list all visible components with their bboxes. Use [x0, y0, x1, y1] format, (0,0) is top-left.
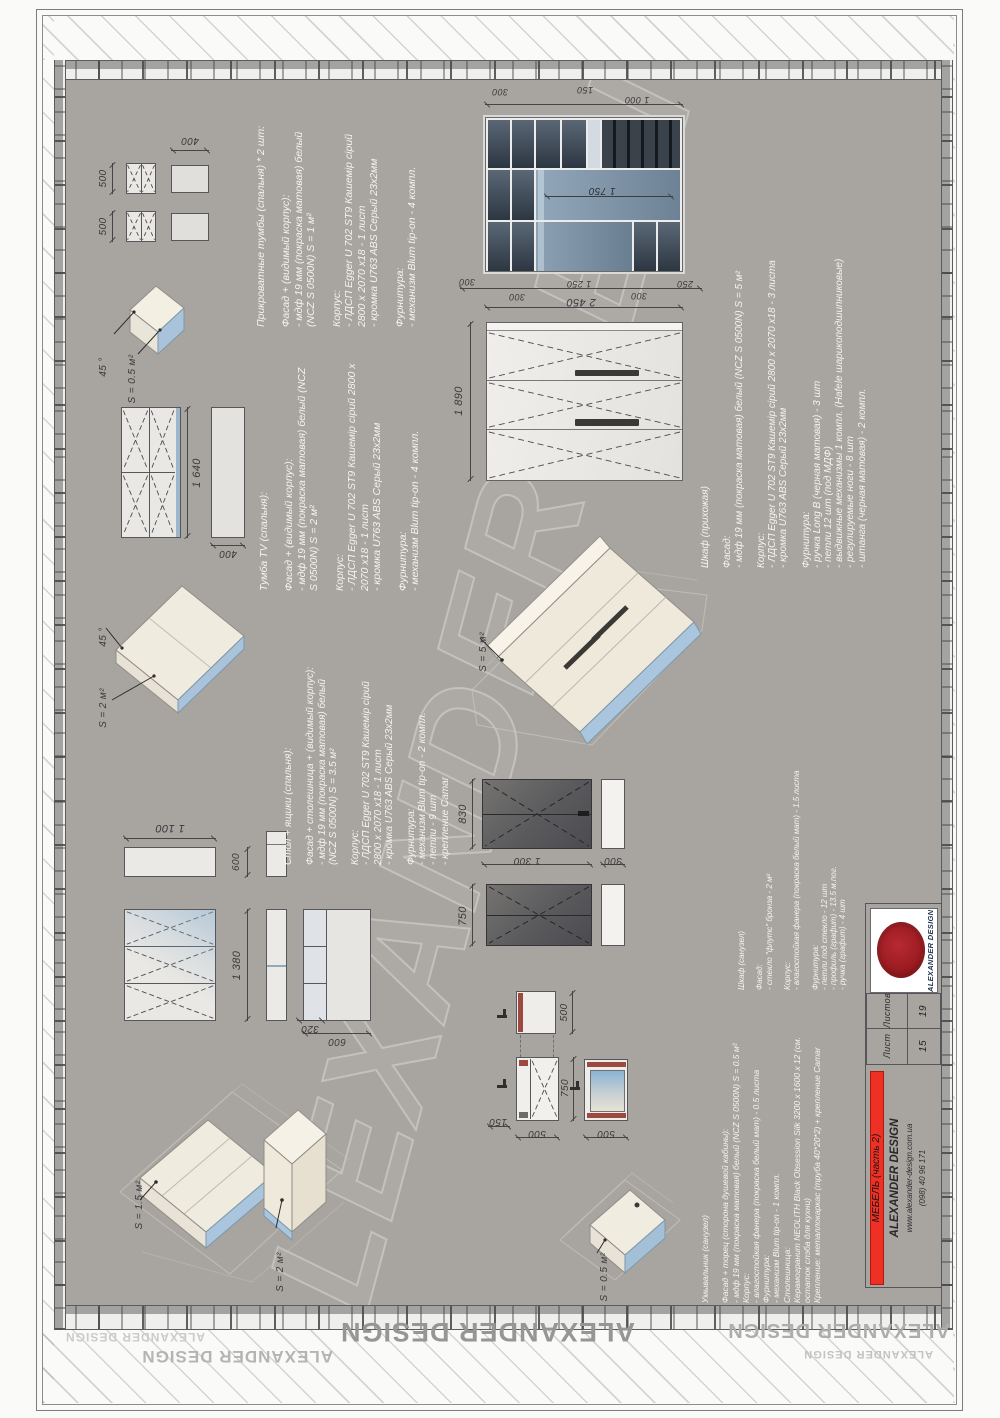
spec-line: [339, 593, 350, 865]
door-handle: [575, 419, 639, 426]
company-website: www.alexander-design.com.ua: [904, 1071, 916, 1285]
spec-title: Умывальник (санузел): [700, 1000, 710, 1303]
door-panel: [127, 164, 142, 193]
spec-line: - кромка U763 ABS Серый 23х2мм: [384, 593, 395, 865]
projection-line: [553, 1035, 554, 1057]
spec-gap: [711, 148, 722, 568]
dim-label: 1 000: [616, 95, 658, 105]
stamp-company-text: ALEXANDER DESIGN: [925, 910, 937, 992]
area-label: S = 2 м²: [97, 682, 110, 734]
company-name: ALEXANDER DESIGN: [887, 1071, 904, 1285]
spec-line: Фурнитура:: [394, 95, 407, 327]
spec-line: - мдф 19 мм (покраска матовая) белый: [293, 95, 306, 327]
door-handle: [575, 370, 639, 376]
spec-gap: [271, 333, 284, 591]
dim-label: 500: [558, 997, 571, 1028]
dim-label: 1 890: [452, 370, 467, 432]
margin-watermark: ALEXANDER DESIGN: [700, 1318, 950, 1341]
spec-line: - петли - 9 шт: [428, 593, 439, 865]
spec-line: Фасад:: [755, 758, 764, 990]
angle-label: 45 °: [97, 618, 110, 656]
dim-label: 300: [599, 855, 627, 866]
title-block: ALEXANDER DESIGN Листов 19 Лист 15 МЕБЕЛ…: [865, 903, 942, 1288]
drawer-side: [304, 984, 327, 1020]
spec-line: [318, 95, 331, 327]
spec-line: - механизм Blum tip-on - 4 компл.: [409, 333, 422, 591]
dim-line: [187, 407, 188, 538]
dim-label: 500: [517, 1128, 557, 1139]
door-section: [487, 430, 682, 480]
angle-label: 45 °: [97, 348, 110, 386]
bath-side-view: [601, 884, 625, 946]
tv-isometric: [102, 572, 257, 720]
area-label: S = 1.5 м²: [133, 1174, 146, 1236]
dim-line: [171, 150, 209, 151]
spec-line: - ЛДСП Egger U 702 ST9 Кашемір сірий 280…: [767, 148, 778, 568]
faucet-icon: [497, 1078, 509, 1090]
spec-line: Корпус:: [741, 1000, 751, 1303]
spec-title: Стол + ящики (спальня):: [283, 593, 294, 865]
dim-line: [124, 838, 216, 839]
spec-line: [774, 758, 783, 990]
spec-line: Корпус:: [331, 95, 344, 327]
door-panel: [142, 164, 155, 193]
spec-line: - крепление Camar: [440, 593, 451, 865]
dim-label: 400: [171, 135, 209, 146]
dim-label: 1 750: [578, 185, 626, 196]
open-shelf: [588, 120, 600, 168]
spec-line: - выдвижные механизмы 1 компл. (Hafele ш…: [834, 148, 845, 568]
company-phone: (098) 40 96 171: [916, 1071, 929, 1285]
dim-line: [247, 847, 248, 877]
spec-line: 2800 х 2070 х18 - 1 лист: [373, 593, 384, 865]
bedside-front-view: [126, 163, 156, 194]
spec-line: - кромка U763 ABS Серый 23х2мм: [778, 148, 789, 568]
margin-top: [43, 16, 954, 60]
dim-line: [112, 211, 113, 242]
margin-left: [43, 16, 54, 1403]
edge-strip: [176, 408, 180, 537]
spec-block-tv: Тумба TV (спальня): Фасад + (видимый кор…: [258, 333, 418, 591]
dim-line: [470, 322, 471, 481]
spec-line: Фасад + (видимый корпус):: [280, 95, 293, 327]
sheet-table: Листов 19 Лист 15: [866, 993, 941, 1065]
spec-line: Корпус:: [334, 333, 347, 591]
spec-title: Шкаф (санузел): [737, 758, 746, 990]
area-label: S = 5 м²: [477, 624, 490, 680]
spec-line: - ЛДСП Egger U 702 ST9 Кашемір сірий: [361, 593, 372, 865]
ruler-left: [54, 60, 66, 1330]
spec-line: Корпус:: [783, 758, 792, 990]
spec-line: - механизм Blum tip-on - 1 компл.: [771, 1000, 781, 1303]
dim-line: [303, 1033, 371, 1034]
spec-line: Фурнитура:: [801, 148, 812, 568]
spec-line: 2070 х18 - 1 лист: [359, 333, 372, 591]
side-panel: [518, 1059, 531, 1119]
spec-line: [801, 758, 810, 990]
spec-line: - мдф 19 мм (покраска матовая) белый (NC…: [296, 333, 309, 591]
spec-line: - ЛДСП Egger U 702 ST9 Кашемір сірий 280…: [346, 333, 359, 591]
x-mark: [127, 164, 141, 193]
dim-label: 1 300: [503, 855, 551, 866]
spec-gap: [710, 1000, 720, 1303]
spec-line: (NCZ S 0500N) S = 1 м²: [305, 95, 318, 327]
sheet-number-value: 15: [908, 1029, 941, 1065]
bath-front-view: [486, 884, 592, 946]
ruler-top: [54, 60, 953, 80]
door-panel: [127, 212, 142, 241]
bedside-isometric: [108, 274, 203, 364]
dim-label: 1 640: [190, 438, 205, 508]
x-mark: [142, 164, 155, 193]
dim-label: 150: [484, 1116, 512, 1127]
dim-label: 750: [456, 896, 470, 936]
spec-gap: [746, 758, 755, 990]
dim-label: 600: [230, 847, 244, 877]
spec-line: - профиль (графит) - 13.5 м.пог.: [829, 758, 838, 990]
area-label: S = 0.5 м²: [598, 1248, 611, 1306]
basin-isometric: [545, 1145, 690, 1300]
spec-line: Корпус:: [350, 593, 361, 865]
dim-line: [472, 884, 473, 946]
project-title-bar: МЕБЕЛЬ (часть 2): [870, 1071, 884, 1285]
dim-label: 830: [456, 791, 470, 837]
spec-block-basin: Умывальник (санузел) Фасад + торец (стор…: [700, 1000, 812, 1303]
bath-front-view: [482, 779, 592, 849]
bedside-front-view: [126, 211, 156, 242]
spec-line: - мдф 19 мм (покраска матовая) белый (NC…: [734, 148, 745, 568]
dim-label: 300: [454, 277, 480, 287]
drawer-side: [304, 947, 327, 984]
desk-side-view: [303, 909, 371, 1021]
margin-watermark: ALEXANDER DESIGN: [788, 1348, 933, 1360]
dim-label: 1 380: [230, 938, 245, 993]
drawer-side: [304, 910, 327, 947]
stamp-box: ALEXANDER DESIGN: [870, 908, 938, 993]
spec-line: - влагостойкая фанера (покраска белый ма…: [792, 758, 801, 990]
spec-line: Фасад + торец (сторона душевой кабины):: [720, 1000, 730, 1303]
spec-line: - мдф 19 мм (покраска матовая) белый: [317, 593, 328, 865]
dim-label: 500: [97, 163, 110, 194]
spec-block-bath: Шкаф (санузел) Фасад: - стекло "флутс" б…: [737, 758, 839, 990]
spec-line: Фурнитура:: [811, 758, 820, 990]
spec-line: Фурнитура:: [761, 1000, 771, 1303]
area-label: S = 2 м²: [274, 1246, 287, 1298]
dim-line: [112, 163, 113, 194]
spec-line: Корпус:: [756, 148, 767, 568]
bedside-side-view: [171, 213, 209, 241]
divider: [267, 965, 286, 967]
faucet-icon: [570, 1080, 582, 1092]
spec-line: - петли под стекло - 12 шт: [820, 758, 829, 990]
countertop-strip: [518, 993, 523, 1032]
spec-block-bedside: Прикроватные тумбы (спальня) * 2 шт: Фас…: [255, 95, 415, 327]
projection-line: [520, 1035, 521, 1057]
spec-line: Фурнитура:: [406, 593, 417, 865]
dim-label: 300: [486, 87, 514, 97]
sheets-total-header: Листов: [866, 993, 908, 1029]
dim-label: 300: [502, 292, 532, 302]
spec-line: - кромка U763 ABS Серый 23х2мм: [371, 333, 384, 591]
dim-label: 500: [97, 211, 110, 242]
dim-label: 2 450: [556, 296, 606, 308]
basin-bowl: [590, 1070, 625, 1112]
dim-line: [247, 909, 248, 1021]
slat-section: [602, 120, 680, 168]
margin-watermark: ALEXANDER DESIGN: [55, 1330, 205, 1344]
spec-line: - мдф 19 мм (покраска матовая) белый (NC…: [731, 1000, 741, 1303]
spec-line: - ЛДСП Egger U 702 ST9 Кашемір сірий: [343, 95, 356, 327]
dim-label: 1 100: [138, 822, 202, 834]
spec-block-desk: Стол + ящики (спальня): Фасад + столешни…: [283, 593, 451, 865]
spec-line: Крепление: металлокаркас (труба 40*20*2)…: [812, 1000, 822, 1303]
light-reflection: [125, 910, 215, 1020]
spec-line: [395, 593, 406, 865]
hall-isometric: [462, 510, 717, 775]
door-handle: [578, 811, 589, 816]
dim-label: 300: [624, 291, 654, 301]
spec-line: - регулируемые ноги - 8 шт: [845, 148, 856, 568]
spec-line: (NCZ S 0500N) S = 3.5 м²: [328, 593, 339, 865]
top-cap: [487, 323, 682, 331]
divider: [483, 814, 591, 815]
ruler-right: [941, 60, 953, 1330]
spec-block-hall: Шкаф (прихожая) Фасад: - мдф 19 мм (покр…: [700, 148, 865, 568]
area-label: S = 0.5 м²: [126, 350, 139, 408]
door-panel: [150, 408, 175, 473]
basin-side-view: [584, 1059, 628, 1121]
spec-line: Фасад + (видимый корпус):: [283, 333, 296, 591]
spec-line: S 0500N) S = 2 м²: [308, 333, 321, 591]
dim-line: [297, 1020, 324, 1021]
desk-top-front: [124, 847, 216, 877]
spec-title: Шкаф (прихожая): [700, 148, 711, 568]
spec-line: - влагостойкая фанера (покраска белый ма…: [751, 1000, 761, 1303]
dim-line: [472, 779, 473, 849]
spec-line: Столешница:: [782, 1000, 792, 1303]
spec-line: [381, 95, 394, 327]
dim-label: 600: [315, 1036, 359, 1047]
dim-label: 150: [572, 85, 598, 95]
x-mark: [142, 212, 155, 241]
faucet-icon: [497, 1008, 509, 1020]
spec-line: - ручка Long B (черная матовая) - 3 шт: [812, 148, 823, 568]
spec-line: [790, 148, 801, 568]
dim-label: 1 250: [556, 279, 602, 289]
margin-watermark: ALEXANDER DESIGN: [355, 1316, 635, 1347]
spec-line: - механизм Blum tip-on - 2 компл.: [417, 593, 428, 865]
desk-front-view: [124, 909, 216, 1021]
bedside-side-view: [171, 165, 209, 193]
bath-side-view: [601, 779, 625, 849]
hall-front-view: [486, 322, 683, 481]
countertop-strip: [587, 1062, 626, 1067]
spec-line: [384, 333, 397, 591]
spec-line: остаток слэба для кухни): [802, 1000, 812, 1303]
door-panel: [122, 473, 150, 537]
countertop-strip: [587, 1113, 626, 1118]
door-panel: [122, 408, 150, 473]
x-mark: [127, 212, 141, 241]
spec-line: Фасад:: [722, 148, 733, 568]
dim-line: [545, 196, 673, 197]
drawing-sheet: ALEXANDER DESIGN 500 500 400 45 ° S = 0.…: [0, 0, 1000, 1418]
door-panel: [142, 212, 155, 241]
spec-line: - петли 12 шт (под МДФ): [823, 148, 834, 568]
tv-front-view: [121, 407, 181, 538]
dim-line: [211, 545, 245, 546]
spec-line: Керамогранит NEOLITH Black Obsession Sil…: [792, 1000, 802, 1303]
dim-label: 250: [670, 279, 700, 289]
sheets-total-value: 19: [908, 993, 941, 1029]
sheet-number-header: Лист: [866, 1029, 908, 1065]
spec-line: - механизм Blum tip-on - 4 компл.: [406, 95, 419, 327]
bottomleft-isometrics: [112, 1082, 352, 1302]
spec-line: - стекло "флутс" бронза - 2 м²: [765, 758, 774, 990]
door-panel: [150, 473, 175, 537]
spec-title: Прикроватные тумбы (спальня) * 2 шт:: [255, 95, 268, 327]
spec-gap: [294, 593, 305, 865]
desk-side-strip: [266, 909, 287, 1021]
spec-title: Тумба TV (спальня):: [258, 333, 271, 591]
spec-line: Фурнитура:: [397, 333, 410, 591]
spec-line: - ручка (графит) - 4 шт: [838, 758, 847, 990]
divider: [487, 915, 591, 916]
spec-line: - кромка U763 ABS Серый 23х2мм: [368, 95, 381, 327]
spec-line: [745, 148, 756, 568]
basin-top-view: [516, 991, 556, 1034]
spec-gap: [268, 95, 281, 327]
spec-line: 2800 х 2070 х18 - 1 лист: [356, 95, 369, 327]
dim-label: 500: [586, 1128, 626, 1139]
spec-line: [321, 333, 334, 591]
basin-front-view: [516, 1057, 559, 1121]
door-panel: [531, 1059, 558, 1119]
dim-line: [572, 991, 573, 1034]
margin-watermark: ALEXANDER DESIGN: [138, 1346, 333, 1366]
dim-label: 400: [209, 548, 247, 559]
hanging-section: [536, 222, 632, 271]
company-stamp: [877, 922, 925, 978]
margin-right: [953, 16, 955, 1403]
tv-side-view: [211, 407, 245, 538]
spec-line: - штанга (черная матовая) - 2 компл.: [857, 148, 868, 568]
spec-line: Фасад + столешница + (видимый корпус):: [305, 593, 316, 865]
